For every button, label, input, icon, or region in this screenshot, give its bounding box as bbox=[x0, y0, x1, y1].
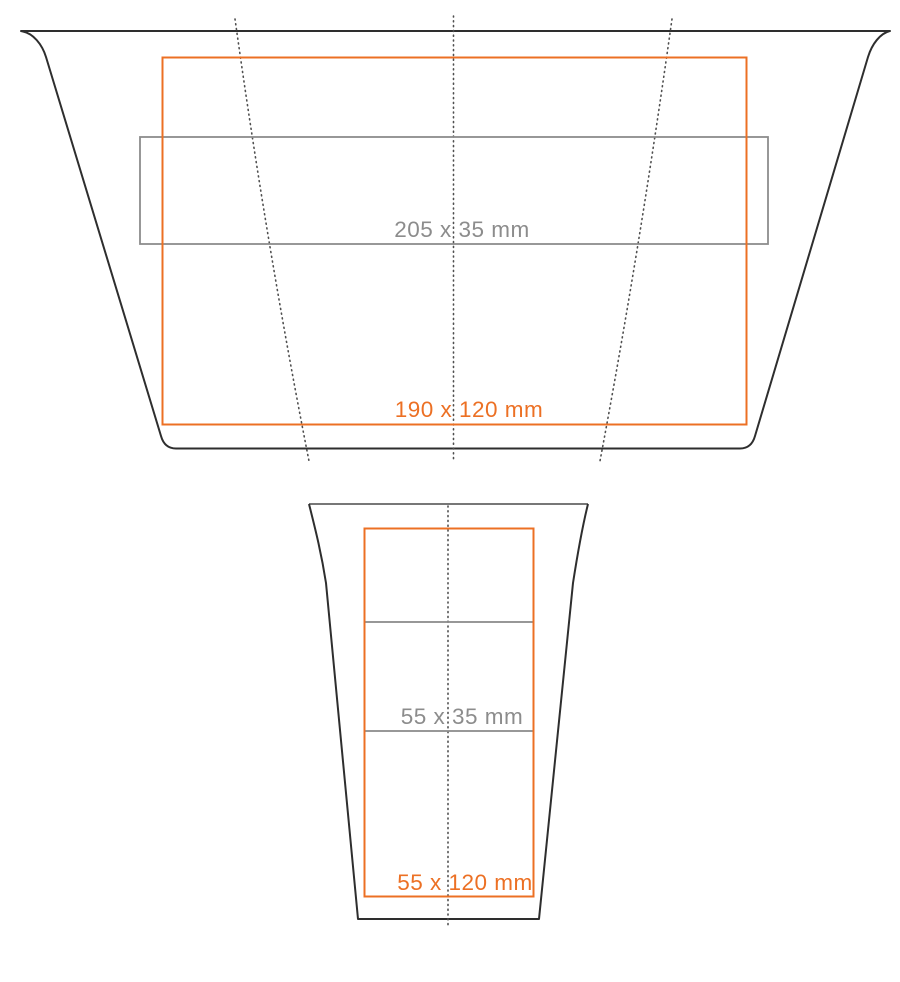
diagram-canvas: 205 x 35 mm 190 x 120 mm 55 x 35 mm 55 x… bbox=[0, 0, 900, 982]
front-band-dimension-label: 55 x 35 mm bbox=[401, 704, 524, 729]
unrolled-cup-view: 205 x 35 mm 190 x 120 mm bbox=[21, 16, 890, 462]
seam-guide-left-dotted-line bbox=[235, 19, 309, 461]
print-template-diagram: 205 x 35 mm 190 x 120 mm 55 x 35 mm 55 x… bbox=[0, 0, 900, 982]
cup-front-view: 55 x 35 mm 55 x 120 mm bbox=[309, 504, 588, 927]
print-area-dimension-label: 190 x 120 mm bbox=[395, 397, 544, 422]
front-print-area-dimension-label: 55 x 120 mm bbox=[397, 870, 533, 895]
seam-guide-right-dotted-line bbox=[600, 19, 672, 461]
band-area-dimension-label: 205 x 35 mm bbox=[394, 217, 530, 242]
